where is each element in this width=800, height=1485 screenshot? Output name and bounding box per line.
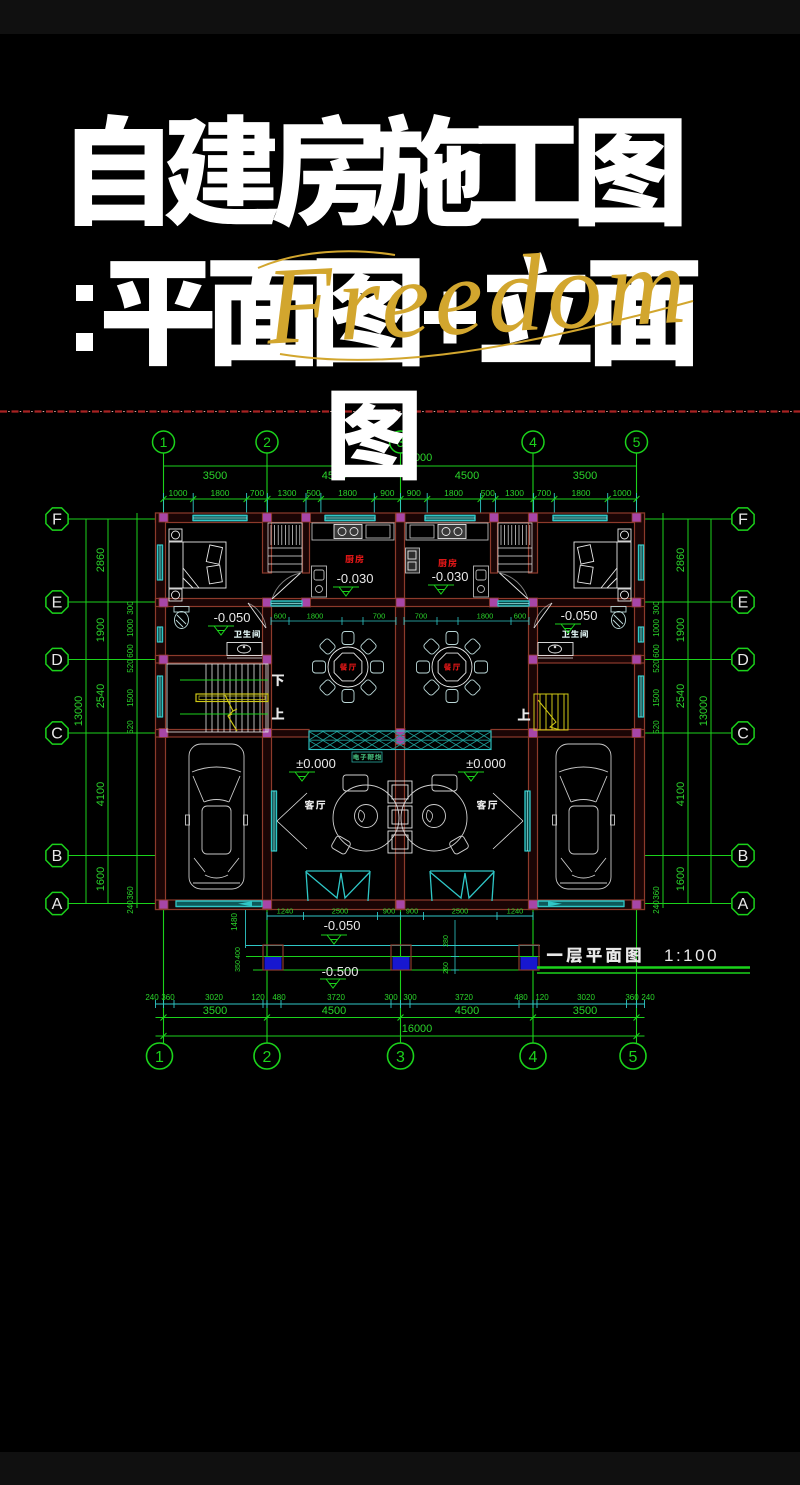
svg-text:E: E (52, 595, 63, 612)
svg-text:D: D (51, 652, 63, 669)
svg-text:13000: 13000 (73, 696, 85, 727)
svg-text:500: 500 (481, 488, 495, 498)
svg-text:5: 5 (629, 1049, 638, 1066)
svg-text:260: 260 (443, 962, 450, 974)
svg-text:1:100: 1:100 (664, 946, 719, 965)
svg-text:-0.050: -0.050 (561, 608, 598, 623)
svg-text:350: 350 (235, 960, 242, 972)
svg-text:1: 1 (155, 1049, 164, 1066)
svg-text:5: 5 (633, 434, 641, 450)
svg-text:1300: 1300 (278, 488, 297, 498)
svg-text:2500: 2500 (332, 907, 349, 916)
svg-text:700: 700 (415, 612, 428, 621)
svg-text:300: 300 (652, 601, 661, 615)
svg-text:900: 900 (383, 907, 396, 916)
svg-text:480: 480 (272, 993, 286, 1002)
svg-text:2: 2 (263, 434, 271, 450)
svg-text:3: 3 (396, 1049, 405, 1066)
svg-text:1800: 1800 (338, 488, 357, 498)
svg-text:240: 240 (652, 900, 661, 914)
svg-text:3020: 3020 (577, 993, 595, 1002)
svg-text:4: 4 (529, 434, 537, 450)
svg-text:1000: 1000 (169, 488, 188, 498)
svg-text:-0.050: -0.050 (324, 918, 361, 933)
svg-text:900: 900 (406, 907, 419, 916)
svg-text:1: 1 (160, 434, 168, 450)
svg-text:D: D (737, 652, 749, 669)
svg-text:±0.000: ±0.000 (466, 756, 506, 771)
svg-text:360: 360 (652, 886, 661, 900)
svg-text:1900: 1900 (675, 618, 687, 642)
svg-text:2500: 2500 (452, 907, 469, 916)
svg-text:4100: 4100 (675, 782, 687, 806)
svg-text:3020: 3020 (205, 993, 223, 1002)
svg-text:A: A (738, 896, 749, 913)
svg-text:1240: 1240 (507, 907, 524, 916)
svg-text:3500: 3500 (573, 1005, 597, 1017)
svg-text:4100: 4100 (95, 782, 107, 806)
svg-text:480: 480 (514, 993, 528, 1002)
svg-text:520: 520 (652, 720, 661, 734)
svg-text:3720: 3720 (327, 993, 345, 1002)
svg-text:2860: 2860 (675, 548, 687, 572)
svg-text:900: 900 (407, 488, 421, 498)
svg-text:C: C (51, 726, 63, 743)
svg-text:B: B (738, 848, 749, 865)
svg-text:700: 700 (373, 612, 386, 621)
svg-text:1900: 1900 (95, 618, 107, 642)
svg-text:A: A (52, 896, 63, 913)
svg-text:4500: 4500 (455, 1005, 479, 1017)
svg-text:900: 900 (380, 488, 394, 498)
svg-text:120: 120 (535, 993, 549, 1002)
svg-text:16000: 16000 (402, 1023, 433, 1035)
svg-text:1600: 1600 (675, 867, 687, 891)
svg-text:E: E (738, 595, 749, 612)
svg-text:600: 600 (652, 644, 661, 658)
svg-text:3720: 3720 (455, 993, 473, 1002)
svg-text:1480: 1480 (230, 913, 239, 931)
svg-text:1000: 1000 (652, 619, 661, 637)
svg-text:1500: 1500 (652, 689, 661, 707)
svg-text:1800: 1800 (572, 488, 591, 498)
svg-text:3500: 3500 (203, 470, 227, 482)
svg-text:4500: 4500 (322, 1005, 346, 1017)
svg-text:-0.500: -0.500 (322, 964, 359, 979)
svg-text:280: 280 (443, 935, 450, 947)
svg-text:B: B (52, 848, 63, 865)
svg-text:F: F (52, 512, 62, 529)
svg-text:300: 300 (126, 601, 135, 615)
svg-text:2860: 2860 (95, 548, 107, 572)
svg-text:-0.030: -0.030 (337, 571, 374, 586)
svg-text:700: 700 (537, 488, 551, 498)
svg-text:3500: 3500 (203, 1005, 227, 1017)
svg-text:500: 500 (306, 488, 320, 498)
svg-text:520: 520 (126, 720, 135, 734)
svg-text:1000: 1000 (613, 488, 632, 498)
svg-text:700: 700 (250, 488, 264, 498)
svg-text:2: 2 (263, 1049, 272, 1066)
svg-text:C: C (737, 726, 749, 743)
svg-text:4: 4 (529, 1049, 538, 1066)
svg-text:1300: 1300 (505, 488, 524, 498)
svg-text:240: 240 (145, 993, 159, 1002)
svg-text:120: 120 (251, 993, 265, 1002)
svg-text:240: 240 (641, 993, 655, 1002)
svg-text:600: 600 (126, 644, 135, 658)
svg-text:13000: 13000 (698, 696, 710, 727)
svg-text:±0.000: ±0.000 (296, 756, 336, 771)
svg-text:1500: 1500 (126, 689, 135, 707)
svg-text:1600: 1600 (95, 867, 107, 891)
svg-text:2540: 2540 (675, 684, 687, 708)
svg-text:F: F (738, 512, 748, 529)
svg-text:600: 600 (274, 612, 287, 621)
svg-text:520: 520 (126, 659, 135, 673)
svg-text:300: 300 (403, 993, 417, 1002)
svg-text:1800: 1800 (444, 488, 463, 498)
svg-text:2540: 2540 (95, 684, 107, 708)
svg-text:600: 600 (514, 612, 527, 621)
svg-text:400: 400 (235, 947, 242, 959)
svg-text:360: 360 (161, 993, 175, 1002)
svg-text:300: 300 (384, 993, 398, 1002)
svg-text:360: 360 (625, 993, 639, 1002)
svg-text:1800: 1800 (477, 612, 494, 621)
svg-text:1800: 1800 (307, 612, 324, 621)
svg-text:360: 360 (126, 886, 135, 900)
svg-text:520: 520 (652, 659, 661, 673)
svg-text:3500: 3500 (573, 470, 597, 482)
svg-text:240: 240 (126, 900, 135, 914)
svg-text:1240: 1240 (277, 907, 294, 916)
svg-text:-0.050: -0.050 (214, 610, 251, 625)
svg-text:-0.030: -0.030 (432, 569, 469, 584)
svg-text:Freedom: Freedom (262, 224, 689, 368)
svg-text:1000: 1000 (126, 619, 135, 637)
svg-text:4500: 4500 (455, 470, 479, 482)
svg-text:1800: 1800 (211, 488, 230, 498)
